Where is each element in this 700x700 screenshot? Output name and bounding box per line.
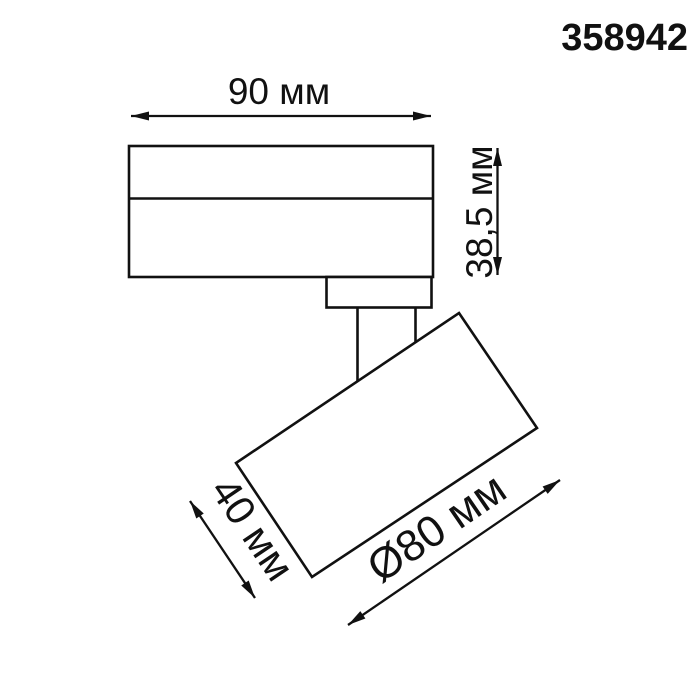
drawing-page: 358942 90 мм 38,5 мм 40 мм Ø80 мм: [0, 0, 700, 700]
dimension-height-label: 38,5 мм: [459, 145, 500, 278]
dimension-width-label: 90 мм: [228, 71, 330, 112]
product-code: 358942: [561, 17, 688, 59]
adapter-block: [327, 277, 432, 308]
track-mount-body: [129, 146, 433, 277]
technical-drawing-canvas: 358942 90 мм 38,5 мм 40 мм Ø80 мм: [0, 0, 700, 700]
